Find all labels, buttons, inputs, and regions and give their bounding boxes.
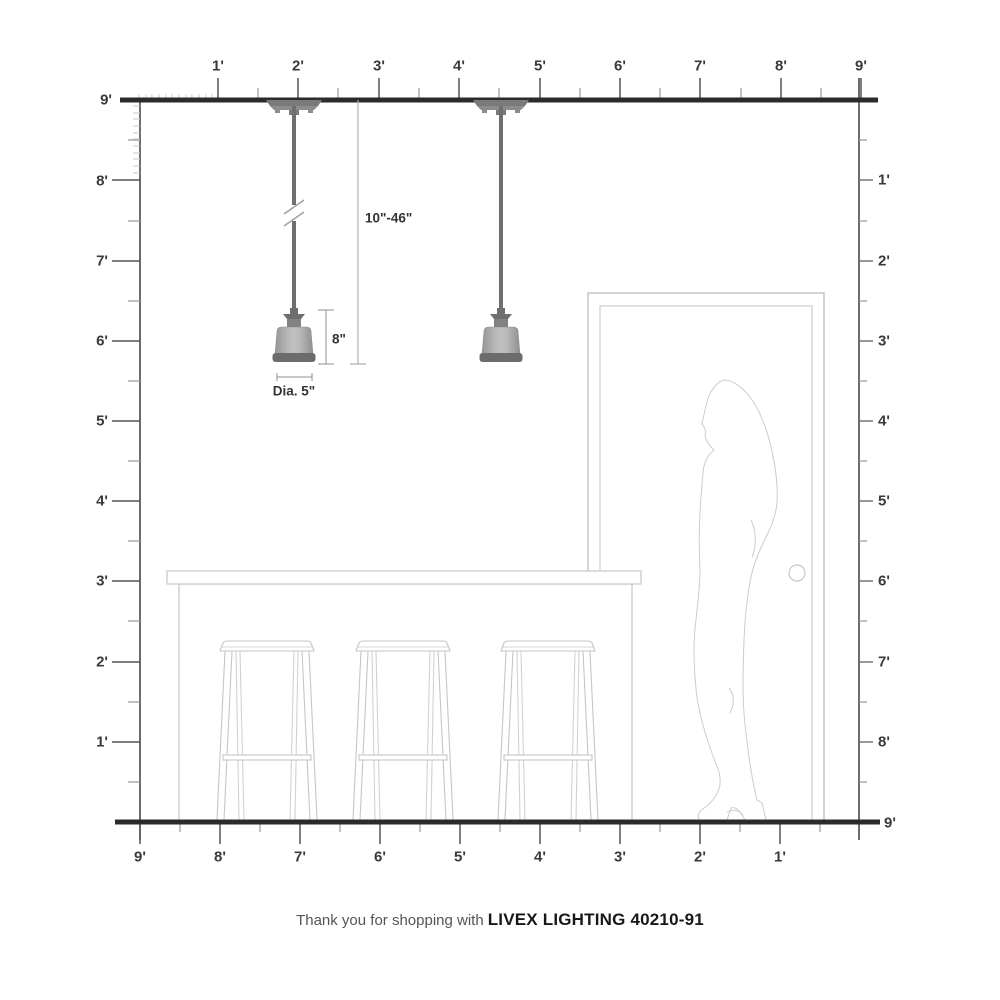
bottom-ruler xyxy=(140,822,820,844)
ruler-label: 3' xyxy=(878,334,890,349)
ruler-label: 2' xyxy=(96,655,108,670)
ruler-label: 6' xyxy=(614,59,626,74)
ruler-label: 1' xyxy=(878,173,890,188)
ruler-label: 5' xyxy=(878,494,890,509)
shade-rim xyxy=(273,353,316,362)
top-ruler xyxy=(139,78,861,100)
footer-prefix: Thank you for shopping with xyxy=(296,912,484,929)
ruler-label: 9' xyxy=(855,59,867,74)
ruler-label: 2' xyxy=(878,254,890,269)
ruler-label: 3' xyxy=(373,59,385,74)
ruler-label: 4' xyxy=(534,850,546,865)
product-dimension-diagram: 1' 2' 3' 4' 5' 6' 7' 8' 9' 9' 8' 7' 6' 5… xyxy=(0,0,1000,1000)
ruler-label: 9' xyxy=(884,816,896,831)
footer: Thank you for shopping withLIVEX LIGHTIN… xyxy=(0,910,1000,930)
door-knob xyxy=(789,565,805,581)
ruler-label: 9' xyxy=(134,850,146,865)
ruler-label: 5' xyxy=(454,850,466,865)
ruler-label: 8' xyxy=(775,59,787,74)
ruler-label: 9' xyxy=(100,93,112,108)
rod xyxy=(292,106,296,205)
ruler-label: 2' xyxy=(694,850,706,865)
pendant-light xyxy=(266,100,322,362)
ruler-label: 7' xyxy=(694,59,706,74)
shade xyxy=(275,327,313,354)
ruler-label: 8' xyxy=(96,174,108,189)
ruler-label: 7' xyxy=(294,850,306,865)
shade xyxy=(482,327,520,354)
ruler-label: 4' xyxy=(96,494,108,509)
shade-rim xyxy=(480,353,523,362)
product-name: LIVEX LIGHTING 40210-91 xyxy=(488,910,704,929)
hanging-height-label: 10"-46" xyxy=(365,211,412,225)
ruler-label: 5' xyxy=(534,59,546,74)
ruler-label: 1' xyxy=(212,59,224,74)
ruler-label: 7' xyxy=(878,655,890,670)
ruler-label: 1' xyxy=(774,850,786,865)
canopy xyxy=(266,100,322,106)
ruler-label: 6' xyxy=(96,334,108,349)
island-base xyxy=(179,584,632,821)
ruler-label: 3' xyxy=(96,574,108,589)
canopy xyxy=(473,100,529,106)
ruler-label: 2' xyxy=(292,59,304,74)
fixture-diameter-label: Dia. 5" xyxy=(273,384,315,398)
ruler-label: 6' xyxy=(878,574,890,589)
ruler-label: 5' xyxy=(96,414,108,429)
ruler-label: 7' xyxy=(96,254,108,269)
ruler-label: 4' xyxy=(453,59,465,74)
pendant-light xyxy=(473,100,529,362)
ruler-label: 4' xyxy=(878,414,890,429)
ruler-label: 1' xyxy=(96,735,108,750)
island-countertop xyxy=(167,571,641,584)
scale-drawing xyxy=(0,0,1000,1000)
rod xyxy=(499,106,503,310)
ruler-label: 3' xyxy=(614,850,626,865)
ruler-label: 6' xyxy=(374,850,386,865)
hanging-height-dimension-line xyxy=(350,100,366,364)
right-ruler xyxy=(859,78,873,840)
fixture-diameter-dimension-line xyxy=(277,373,312,381)
fixture-height-label: 8" xyxy=(332,332,346,346)
ruler-label: 8' xyxy=(878,735,890,750)
ruler-label: 8' xyxy=(214,850,226,865)
left-ruler xyxy=(112,100,140,840)
